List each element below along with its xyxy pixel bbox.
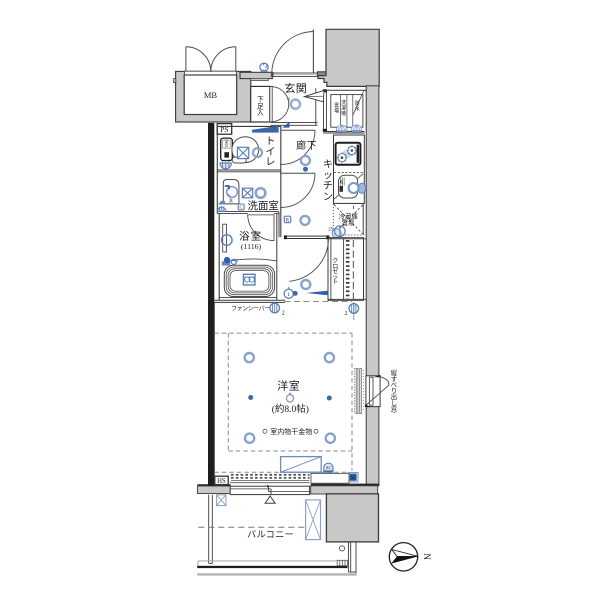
svg-text:トイレ: トイレ xyxy=(265,137,275,169)
svg-text:2: 2 xyxy=(282,310,285,316)
svg-text:M: M xyxy=(351,476,356,482)
svg-text:25: 25 xyxy=(328,228,333,233)
svg-text:防水: 防水 xyxy=(355,100,360,113)
svg-text:洗濯機: 洗濯機 xyxy=(341,99,346,117)
svg-text:AC: AC xyxy=(325,465,331,470)
svg-text:縦すべり出し窓: 縦すべり出し窓 xyxy=(391,368,398,414)
svg-text:2: 2 xyxy=(345,311,348,317)
svg-text:置場: 置場 xyxy=(342,218,355,227)
svg-text:MB: MB xyxy=(204,90,218,100)
svg-text:HS: HS xyxy=(217,478,226,485)
svg-text:クロゼット: クロゼット xyxy=(332,258,338,286)
svg-text:ファンシーバー: ファンシーバー xyxy=(231,306,270,313)
svg-text:1: 1 xyxy=(287,292,290,298)
svg-text:N: N xyxy=(421,553,431,560)
svg-text:キッチン: キッチン xyxy=(323,160,333,204)
svg-text:洗: 洗 xyxy=(229,198,233,203)
svg-text:洋室: 洋室 xyxy=(277,379,300,393)
svg-text:下足入: 下足入 xyxy=(257,96,264,118)
svg-text:吊戸: 吊戸 xyxy=(225,140,229,149)
svg-text:(1116): (1116) xyxy=(241,242,262,251)
svg-text:置場: 置場 xyxy=(334,103,339,115)
svg-text:室内物干金物: 室内物干金物 xyxy=(270,427,312,436)
svg-text:給: 給 xyxy=(340,179,344,184)
svg-text:浴室: 浴室 xyxy=(239,229,262,242)
svg-text:(約8.0帖): (約8.0帖) xyxy=(272,403,309,415)
svg-text:洗面室: 洗面室 xyxy=(247,199,279,212)
svg-text:玄関: 玄関 xyxy=(284,81,307,95)
svg-text:バルコニー: バルコニー xyxy=(247,529,294,539)
svg-text:C: C xyxy=(240,205,243,210)
svg-text:廊下: 廊下 xyxy=(296,139,317,152)
